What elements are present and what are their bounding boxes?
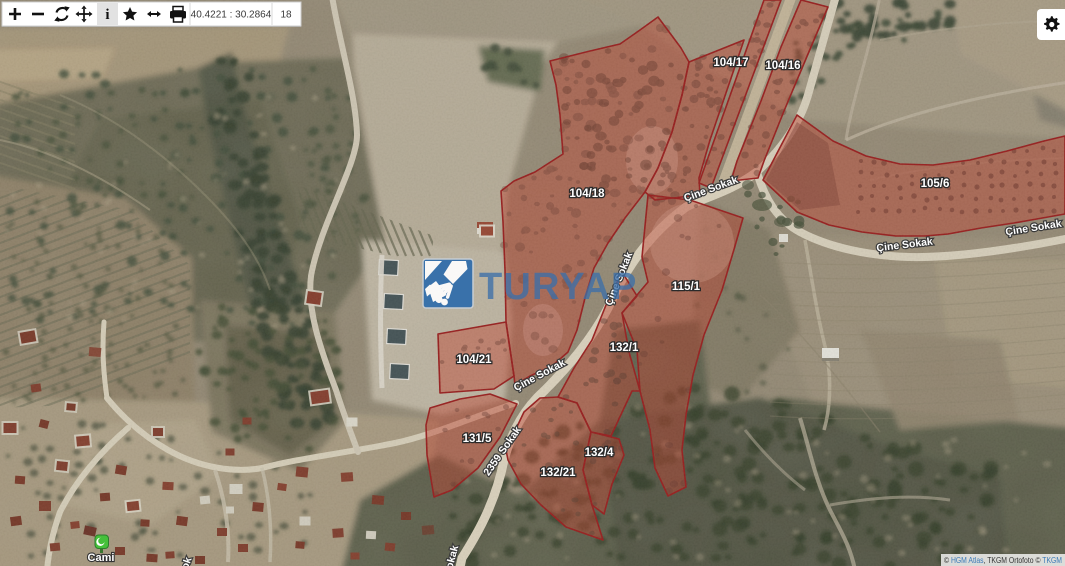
svg-text:131/5: 131/5 <box>463 433 492 445</box>
svg-text:Cami: Cami <box>88 552 115 564</box>
svg-text:115/1: 115/1 <box>672 281 701 293</box>
svg-text:© HGM Atlas, TKGM Ortofoto © T: © HGM Atlas, TKGM Ortofoto © TKGM <box>944 555 1062 565</box>
svg-text:40.4221 : 30.2864: 40.4221 : 30.2864 <box>191 10 272 21</box>
svg-text:105/6: 105/6 <box>921 178 950 190</box>
svg-text:TURYAP: TURYAP <box>479 266 638 308</box>
svg-text:104/17: 104/17 <box>713 57 748 69</box>
svg-text:132/4: 132/4 <box>585 447 614 459</box>
svg-text:18: 18 <box>280 10 292 21</box>
svg-text:132/21: 132/21 <box>540 467 576 479</box>
svg-text:104/18: 104/18 <box>569 188 605 200</box>
svg-text:i: i <box>105 7 109 23</box>
svg-text:104/21: 104/21 <box>456 354 492 366</box>
svg-text:132/1: 132/1 <box>610 342 639 354</box>
svg-text:104/16: 104/16 <box>765 60 800 72</box>
